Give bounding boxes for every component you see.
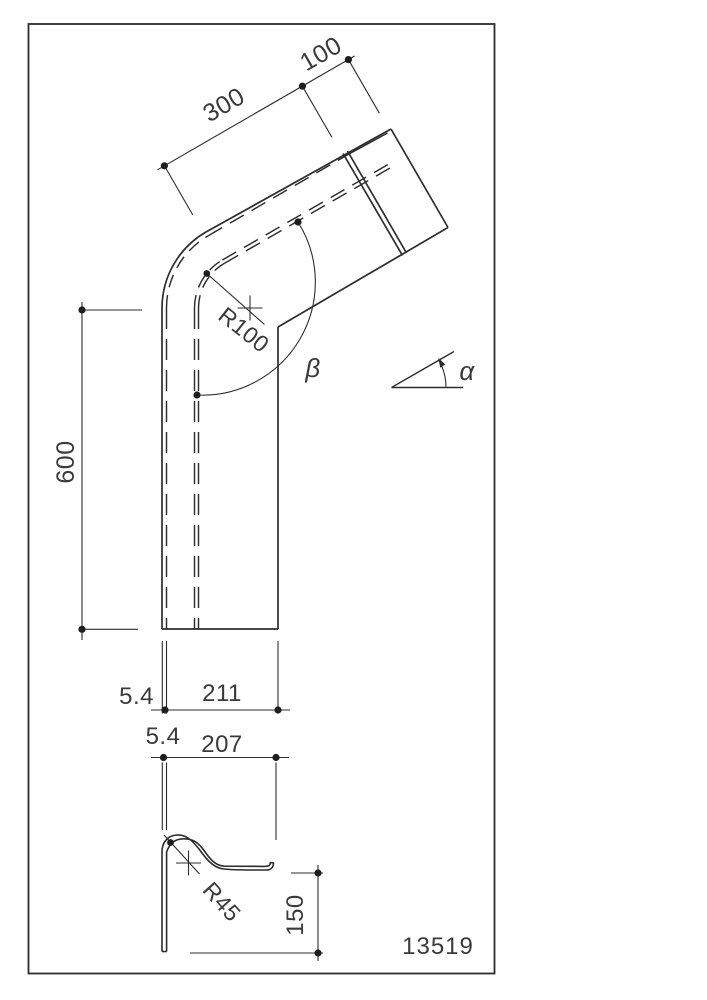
inner-edge-tip-segment — [349, 133, 388, 154]
hidden-angled-hook-b — [224, 164, 397, 264]
segment-boundary-line-2 — [348, 151, 407, 253]
dim-dot — [314, 949, 321, 956]
dim-100-label: 100 — [295, 31, 346, 77]
dim-600-label: 600 — [52, 440, 80, 483]
section-hook-curve — [162, 835, 274, 870]
r45-leader-dot — [167, 839, 174, 846]
technical-drawing: 300 100 600 R100 β α 5.4 211 5.4 207 R45… — [0, 0, 707, 1000]
dimension-lines — [82, 56, 463, 961]
dim-211-label: 211 — [202, 680, 242, 707]
segment-boundary-line-1 — [343, 154, 403, 256]
dimension-dots — [78, 56, 352, 957]
beta-angle-arc — [197, 222, 315, 395]
dim-dot — [274, 706, 281, 713]
dim-dot — [161, 706, 168, 713]
beta-angle-label: β — [304, 353, 320, 383]
dim-54-upper-label: 5.4 — [119, 683, 154, 710]
beta-arc-dot — [193, 391, 200, 398]
dim-300-100-line — [158, 56, 355, 170]
dim-dot — [345, 56, 352, 63]
dim-dot — [272, 754, 279, 761]
hook-radius-label: R45 — [198, 877, 247, 927]
dim-207-label: 207 — [201, 731, 243, 758]
profile-end-cap — [391, 129, 448, 228]
dim-300-ext-right — [304, 89, 332, 138]
alpha-angle-label: α — [459, 356, 475, 386]
r100-leader-dot — [203, 270, 210, 277]
dim-dot — [78, 626, 85, 633]
beta-arc-dot — [294, 218, 301, 225]
dim-dot — [161, 162, 168, 169]
dim-54-lower-label: 5.4 — [146, 723, 181, 750]
part-number: 13519 — [402, 933, 474, 960]
dim-dot — [299, 83, 306, 90]
alpha-hypotenuse — [392, 352, 455, 388]
dim-dot — [160, 754, 167, 761]
hidden-angled-inner-wall — [208, 154, 349, 236]
drawing-border — [29, 24, 495, 974]
dim-dot — [78, 306, 85, 313]
profile-bottom-angled-edge — [278, 228, 448, 328]
dim-dot — [314, 869, 321, 876]
drawing-sheet: 300 100 600 R100 β α 5.4 211 5.4 207 R45… — [0, 0, 707, 1000]
bend-radius-label: R100 — [214, 302, 275, 358]
dim-300-ext-left — [166, 169, 193, 216]
dim-150-label: 150 — [282, 894, 309, 936]
dim-100-ext-right — [350, 62, 379, 113]
main-view-hidden-lines — [167, 154, 398, 629]
